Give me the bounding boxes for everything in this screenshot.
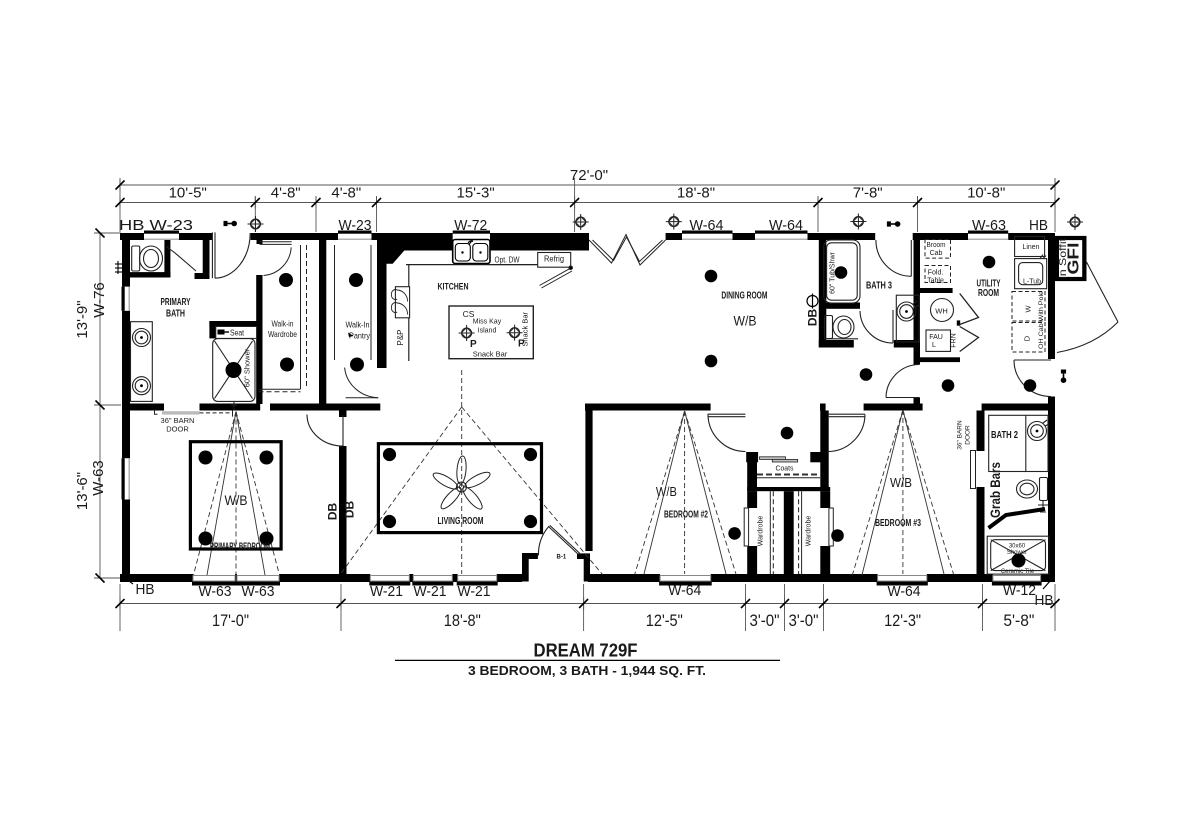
svg-text:18'-8": 18'-8" xyxy=(677,185,715,202)
svg-text:B-1: B-1 xyxy=(557,555,567,561)
svg-text:Fold.: Fold. xyxy=(928,270,944,277)
svg-text:FAU: FAU xyxy=(929,334,943,341)
svg-text:W/B: W/B xyxy=(656,484,677,499)
svg-text:W-76: W-76 xyxy=(91,282,108,318)
svg-text:3'-0": 3'-0" xyxy=(789,611,819,630)
svg-text:W-21: W-21 xyxy=(414,583,447,600)
svg-text:L: L xyxy=(932,342,936,349)
svg-text:CS: CS xyxy=(463,309,475,319)
svg-text:Broom: Broom xyxy=(927,240,946,249)
svg-text:Walk-in: Walk-in xyxy=(272,320,294,329)
svg-text:10'-5": 10'-5" xyxy=(169,185,207,202)
svg-text:OH Cab With Pole: OH Cab With Pole xyxy=(1038,291,1045,349)
svg-text:L-Tub: L-Tub xyxy=(1023,277,1041,286)
svg-text:36" BARN: 36" BARN xyxy=(957,420,964,450)
svg-text:Coats: Coats xyxy=(776,464,794,473)
svg-text:Wardrobe: Wardrobe xyxy=(758,516,765,547)
svg-text:Table: Table xyxy=(927,278,944,285)
svg-text:W-21: W-21 xyxy=(458,583,491,600)
svg-text:LIVING ROOM: LIVING ROOM xyxy=(438,516,484,527)
svg-text:12'-3": 12'-3" xyxy=(884,611,921,630)
svg-text:W-63: W-63 xyxy=(242,583,275,600)
svg-text:72'-0": 72'-0" xyxy=(570,167,608,184)
svg-text:Ceramic Tile: Ceramic Tile xyxy=(1001,569,1035,575)
svg-text:W-64: W-64 xyxy=(888,583,921,600)
svg-text:3 BEDROOM, 3 BATH - 1,944 SQ.: 3 BEDROOM, 3 BATH - 1,944 SQ. FT. xyxy=(468,664,706,678)
svg-text:Grab Bars: Grab Bars xyxy=(987,462,1003,518)
svg-text:DOOR: DOOR xyxy=(166,425,189,434)
svg-text:13'-6": 13'-6" xyxy=(74,472,91,510)
svg-text:5'-8": 5'-8" xyxy=(1003,611,1034,630)
svg-text:HB: HB xyxy=(1035,592,1054,609)
svg-text:DREAM 729F: DREAM 729F xyxy=(534,641,638,661)
svg-text:Opt. DW: Opt. DW xyxy=(495,256,520,265)
svg-text:DOOR: DOOR xyxy=(965,425,972,445)
svg-text:DINING ROOM: DINING ROOM xyxy=(721,291,767,302)
svg-text:3'-0": 3'-0" xyxy=(750,611,780,630)
svg-text:BATH 3: BATH 3 xyxy=(866,281,892,292)
svg-text:BEDROOM #2: BEDROOM #2 xyxy=(664,509,708,521)
svg-text:Wardrobe: Wardrobe xyxy=(268,330,297,339)
svg-text:Cab: Cab xyxy=(930,250,943,257)
svg-text:W: W xyxy=(1024,305,1033,313)
svg-text:ROOM: ROOM xyxy=(978,288,999,299)
svg-text:Walk-In: Walk-In xyxy=(346,321,370,330)
svg-text:W-63: W-63 xyxy=(199,583,232,600)
svg-text:Wardrobe: Wardrobe xyxy=(806,516,813,547)
svg-text:HB: HB xyxy=(136,581,155,598)
svg-text:W-63: W-63 xyxy=(90,460,107,496)
svg-text:15'-3": 15'-3" xyxy=(456,185,494,202)
svg-text:DB: DB xyxy=(343,501,357,519)
svg-text:PRIMARY BEDROOM: PRIMARY BEDROOM xyxy=(210,542,270,553)
svg-text:W/B: W/B xyxy=(734,313,757,329)
svg-text:Snack Bar: Snack Bar xyxy=(473,350,508,359)
svg-text:DB: DB xyxy=(806,309,820,327)
svg-text:Miss Kay: Miss Kay xyxy=(473,319,502,326)
svg-text:DB: DB xyxy=(326,503,340,521)
svg-text:17'-0": 17'-0" xyxy=(212,611,249,630)
svg-text:7'-8": 7'-8" xyxy=(853,185,883,202)
svg-text:BATH: BATH xyxy=(166,308,185,319)
svg-text:Refrig: Refrig xyxy=(544,255,564,264)
svg-text:4'-8": 4'-8" xyxy=(331,185,361,202)
svg-text:60" Shower: 60" Shower xyxy=(243,348,252,387)
svg-text:FRN: FRN xyxy=(951,333,958,347)
svg-text:30x60: 30x60 xyxy=(1009,544,1026,550)
svg-text:12'-5": 12'-5" xyxy=(646,611,683,630)
svg-text:P: P xyxy=(518,339,525,350)
svg-text:PRIMARY: PRIMARY xyxy=(161,297,191,308)
svg-text:13'-9": 13'-9" xyxy=(74,300,91,338)
svg-text:Linen: Linen xyxy=(1023,242,1040,251)
svg-text:60" Tub/Shwr: 60" Tub/Shwr xyxy=(830,251,837,293)
svg-text:BEDROOM #3: BEDROOM #3 xyxy=(875,517,921,529)
svg-text:WH: WH xyxy=(935,307,948,316)
svg-text:D: D xyxy=(1023,335,1032,341)
svg-text:Island: Island xyxy=(478,327,497,334)
svg-text:GFI: GFI xyxy=(1066,243,1083,275)
svg-text:10'-8": 10'-8" xyxy=(967,185,1005,202)
svg-text:4'-8": 4'-8" xyxy=(271,185,301,202)
svg-text:Shower: Shower xyxy=(1007,550,1027,556)
svg-text:W/B: W/B xyxy=(225,492,248,508)
svg-text:W/B: W/B xyxy=(890,475,912,490)
svg-text:HB: HB xyxy=(1029,217,1048,234)
svg-text:KITCHEN: KITCHEN xyxy=(438,282,469,292)
svg-text:P: P xyxy=(470,339,477,350)
svg-text:Seat: Seat xyxy=(230,329,245,338)
svg-text:W-21: W-21 xyxy=(370,583,403,600)
svg-text:P&P: P&P xyxy=(396,329,405,345)
svg-text:BATH 2: BATH 2 xyxy=(991,429,1018,441)
svg-text:18'-8": 18'-8" xyxy=(444,611,481,630)
